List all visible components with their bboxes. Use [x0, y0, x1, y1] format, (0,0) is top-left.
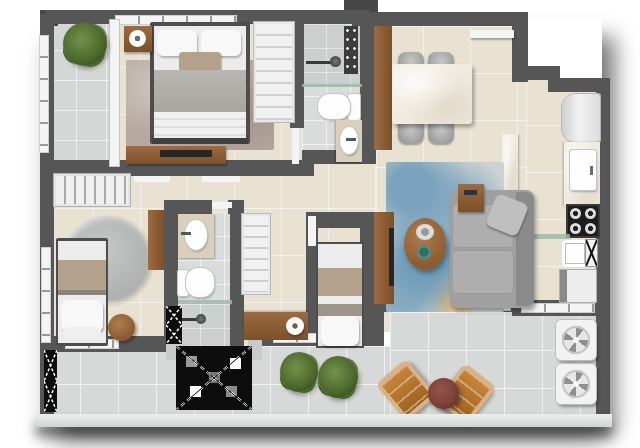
living-tv — [389, 228, 394, 286]
master-folded-throw — [154, 112, 246, 136]
burner-1 — [570, 208, 581, 219]
refrigerator — [562, 94, 600, 142]
laundry-sink — [562, 240, 588, 267]
bed3-pillow — [321, 316, 359, 346]
master-balcony-glass-divider — [110, 20, 119, 166]
master-foot-rail — [152, 138, 248, 144]
burner-4 — [585, 223, 596, 234]
washing-machine — [560, 270, 596, 302]
balcony-planter-1 — [280, 352, 318, 392]
ac-condenser-2 — [556, 364, 596, 404]
ac-condenser-1 — [556, 320, 596, 360]
bath1-faucet — [346, 138, 356, 141]
coffee-table-tray — [416, 224, 434, 240]
bath2-toilet-bowl — [186, 268, 214, 297]
bed2-blanket-stripe — [58, 290, 106, 295]
living-end-table — [458, 184, 484, 212]
bed3-blanket-stripe — [318, 304, 362, 316]
wall-top-dining — [352, 12, 528, 26]
master-accent-pillow — [179, 52, 221, 72]
master-wardrobe — [256, 24, 292, 120]
coffee-table-bowl — [417, 245, 431, 259]
ac-fan-2-hub — [573, 381, 579, 387]
wall-south-connector — [368, 298, 384, 346]
bath2-glass-shelf — [178, 300, 232, 304]
dining-table — [392, 64, 472, 124]
end-table-decor — [464, 190, 477, 195]
bed2-pillow-small — [63, 327, 101, 339]
door-leaf-bed3 — [308, 216, 316, 246]
balcony-shaft-hatch — [176, 346, 252, 410]
floor-plan — [0, 0, 640, 448]
bed2-wall-ledge — [148, 210, 164, 270]
bed2-hanger-closet — [56, 176, 128, 204]
master-plant — [63, 22, 107, 66]
bath1-shower-screen — [344, 26, 358, 74]
dining-floating-shelf — [470, 30, 514, 38]
wall-bath2-north-a — [164, 200, 212, 214]
bed2-blanket — [58, 260, 106, 292]
balcony-round-table — [428, 378, 459, 409]
desk-paper-roll — [286, 317, 304, 335]
bed2-side-table — [108, 314, 135, 341]
bath1-shower-head — [330, 56, 341, 67]
burner-2 — [585, 208, 596, 219]
master-blanket — [154, 70, 246, 114]
bath1-toilet-bowl — [318, 94, 350, 119]
bed3-blanket — [318, 268, 362, 296]
master-tv — [160, 150, 212, 157]
bathroom2-shower-floor — [176, 304, 232, 346]
wall-bath1-west — [290, 24, 304, 128]
door-leaf-master-b — [202, 176, 240, 182]
balcony-side-shaft-hatch — [44, 350, 57, 412]
burner-3 — [570, 223, 581, 234]
window-master-west — [40, 36, 48, 152]
door-leaf-bath2 — [212, 202, 232, 208]
dining-wood-panel — [374, 26, 392, 150]
window-service-south — [522, 304, 594, 312]
balcony-planter-2 — [318, 356, 358, 398]
bath2-faucet — [181, 232, 191, 235]
bath2-shower-hatch — [166, 306, 182, 344]
balcony-curb — [36, 414, 612, 427]
sofa-cushion-2 — [452, 250, 514, 294]
door-leaf-bath1 — [292, 128, 299, 164]
nightstand-tray — [129, 30, 146, 47]
wall-bath2-east — [230, 212, 244, 346]
bath1-glass-partition — [302, 84, 362, 87]
kitchen-cabinet-handle — [590, 166, 593, 175]
bath2-basin — [185, 220, 207, 250]
marble-peninsula — [502, 134, 518, 196]
window-bed2-west — [42, 248, 50, 342]
ac-fan-1-hub — [573, 337, 579, 343]
door-leaf-master-a — [134, 176, 170, 182]
bath2-shower-head — [196, 314, 206, 324]
drying-rack-hatch — [586, 240, 597, 266]
office-wardrobe — [244, 216, 268, 292]
